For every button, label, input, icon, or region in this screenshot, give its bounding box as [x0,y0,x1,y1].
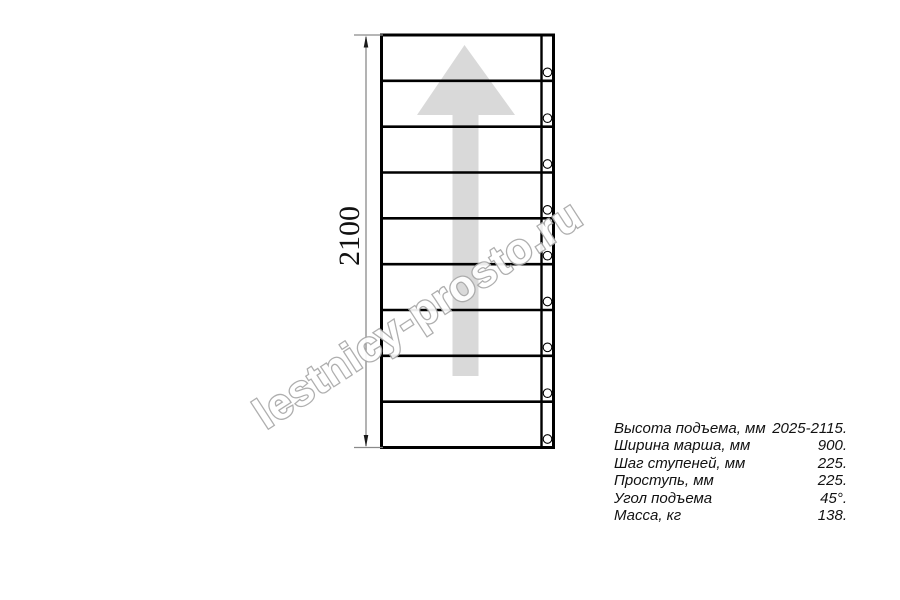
spec-row-height: Высота подъема, мм 2025-2115. [614,420,847,437]
dimension-label: 2100 [333,206,366,266]
dimension-arrowhead-top [364,36,369,48]
spec-value: 900. [818,437,847,454]
screw-circle [543,114,552,123]
spec-row-step-pitch: Шаг ступеней, мм 225. [614,455,847,472]
spec-label: Шаг ступеней, мм [614,455,745,472]
spec-label: Угол подъема [614,490,712,507]
screw-circle [543,160,552,169]
spec-value: 225. [818,472,847,489]
screw-circle [543,435,552,444]
spec-row-width: Ширина марша, мм 900. [614,437,847,454]
screw-circle [543,297,552,306]
screw-circle [543,68,552,77]
screw-circle [543,389,552,398]
spec-value: 138. [818,507,847,524]
spec-label: Высота подъема, мм [614,420,766,437]
specs-table: Высота подъема, мм 2025-2115. Ширина мар… [614,420,847,524]
spec-label: Ширина марша, мм [614,437,750,454]
screw-circle [543,343,552,352]
spec-row-angle: Угол подъема 45°. [614,490,847,507]
dimension-arrowhead-bottom [364,435,369,447]
spec-row-tread: Проступь, мм 225. [614,472,847,489]
spec-value: 45°. [820,490,847,507]
spec-value: 225. [818,455,847,472]
spec-row-mass: Масса, кг 138. [614,507,847,524]
spec-value: 2025-2115. [772,420,847,437]
spec-label: Масса, кг [614,507,681,524]
spec-label: Проступь, мм [614,472,714,489]
